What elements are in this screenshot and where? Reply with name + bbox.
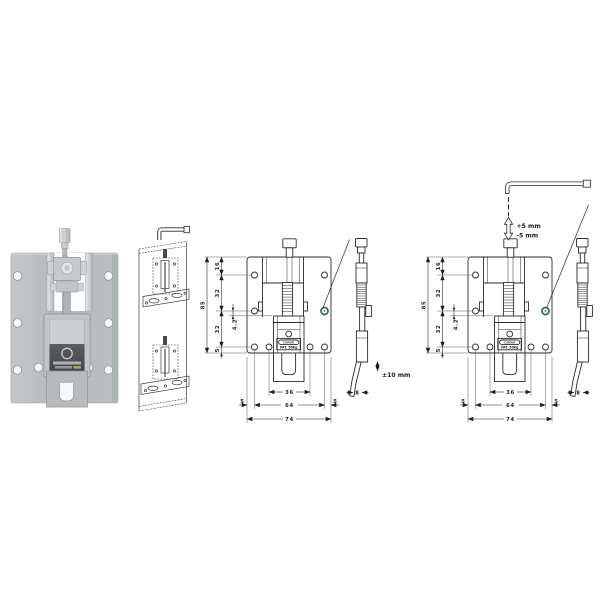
side-profile-view: 8 [347,239,372,397]
allen-key-icon [505,180,591,193]
technical-drawings: CAMAR PAT. 50Kg [200,175,600,430]
left-dimensions: 16 32 32 5 4.2 85 [201,257,239,358]
wall-panel [139,242,187,412]
up-down-arrow-icon [504,218,512,241]
u-bracket [274,353,305,382]
dimensioned-front-and-side-view: CAMAR PAT. 50Kg [201,239,372,424]
dim-5-right: 5 [333,399,337,405]
travel-annotation: ±10 mm [382,372,410,379]
product-photo [5,224,125,426]
photo-sliding-bracket [44,314,90,407]
threaded-spindle [282,283,292,317]
dim-36: 36 [285,390,294,396]
photo-u-slot [60,383,74,401]
dim-5-bottom: 5 [215,348,221,352]
dim-8: 8 [355,390,359,396]
dim-16: 16 [215,262,221,271]
hanger-sketch-bottom [141,336,189,395]
bottom-dimensions: 36 5 64 5 74 [239,390,339,423]
dim-32-lower: 32 [215,325,221,334]
dim-74: 74 [285,417,294,423]
hanger-sketch-top [143,249,189,307]
dim-64: 64 [285,403,294,409]
plate-label: CAMAR PAT. 50Kg [277,338,301,349]
dim-85: 85 [201,301,207,310]
allen-key-icon [159,226,189,240]
dim-5-left: 5 [240,399,244,405]
plate-label-brand: CAMAR [283,341,294,345]
adjust-up-annotation: +5 mm [517,223,541,230]
photo-adjuster-mechanism [47,229,93,321]
dim-4-2: 4.2 [233,319,239,330]
plate-label-capacity: PAT. 50Kg [280,346,298,350]
dim-32-upper: 32 [215,289,221,298]
adjust-down-annotation: -5 mm [517,232,539,239]
product-diagram-image: CAMAR PAT. 50Kg [0,0,600,600]
installation-sketch [130,215,202,425]
